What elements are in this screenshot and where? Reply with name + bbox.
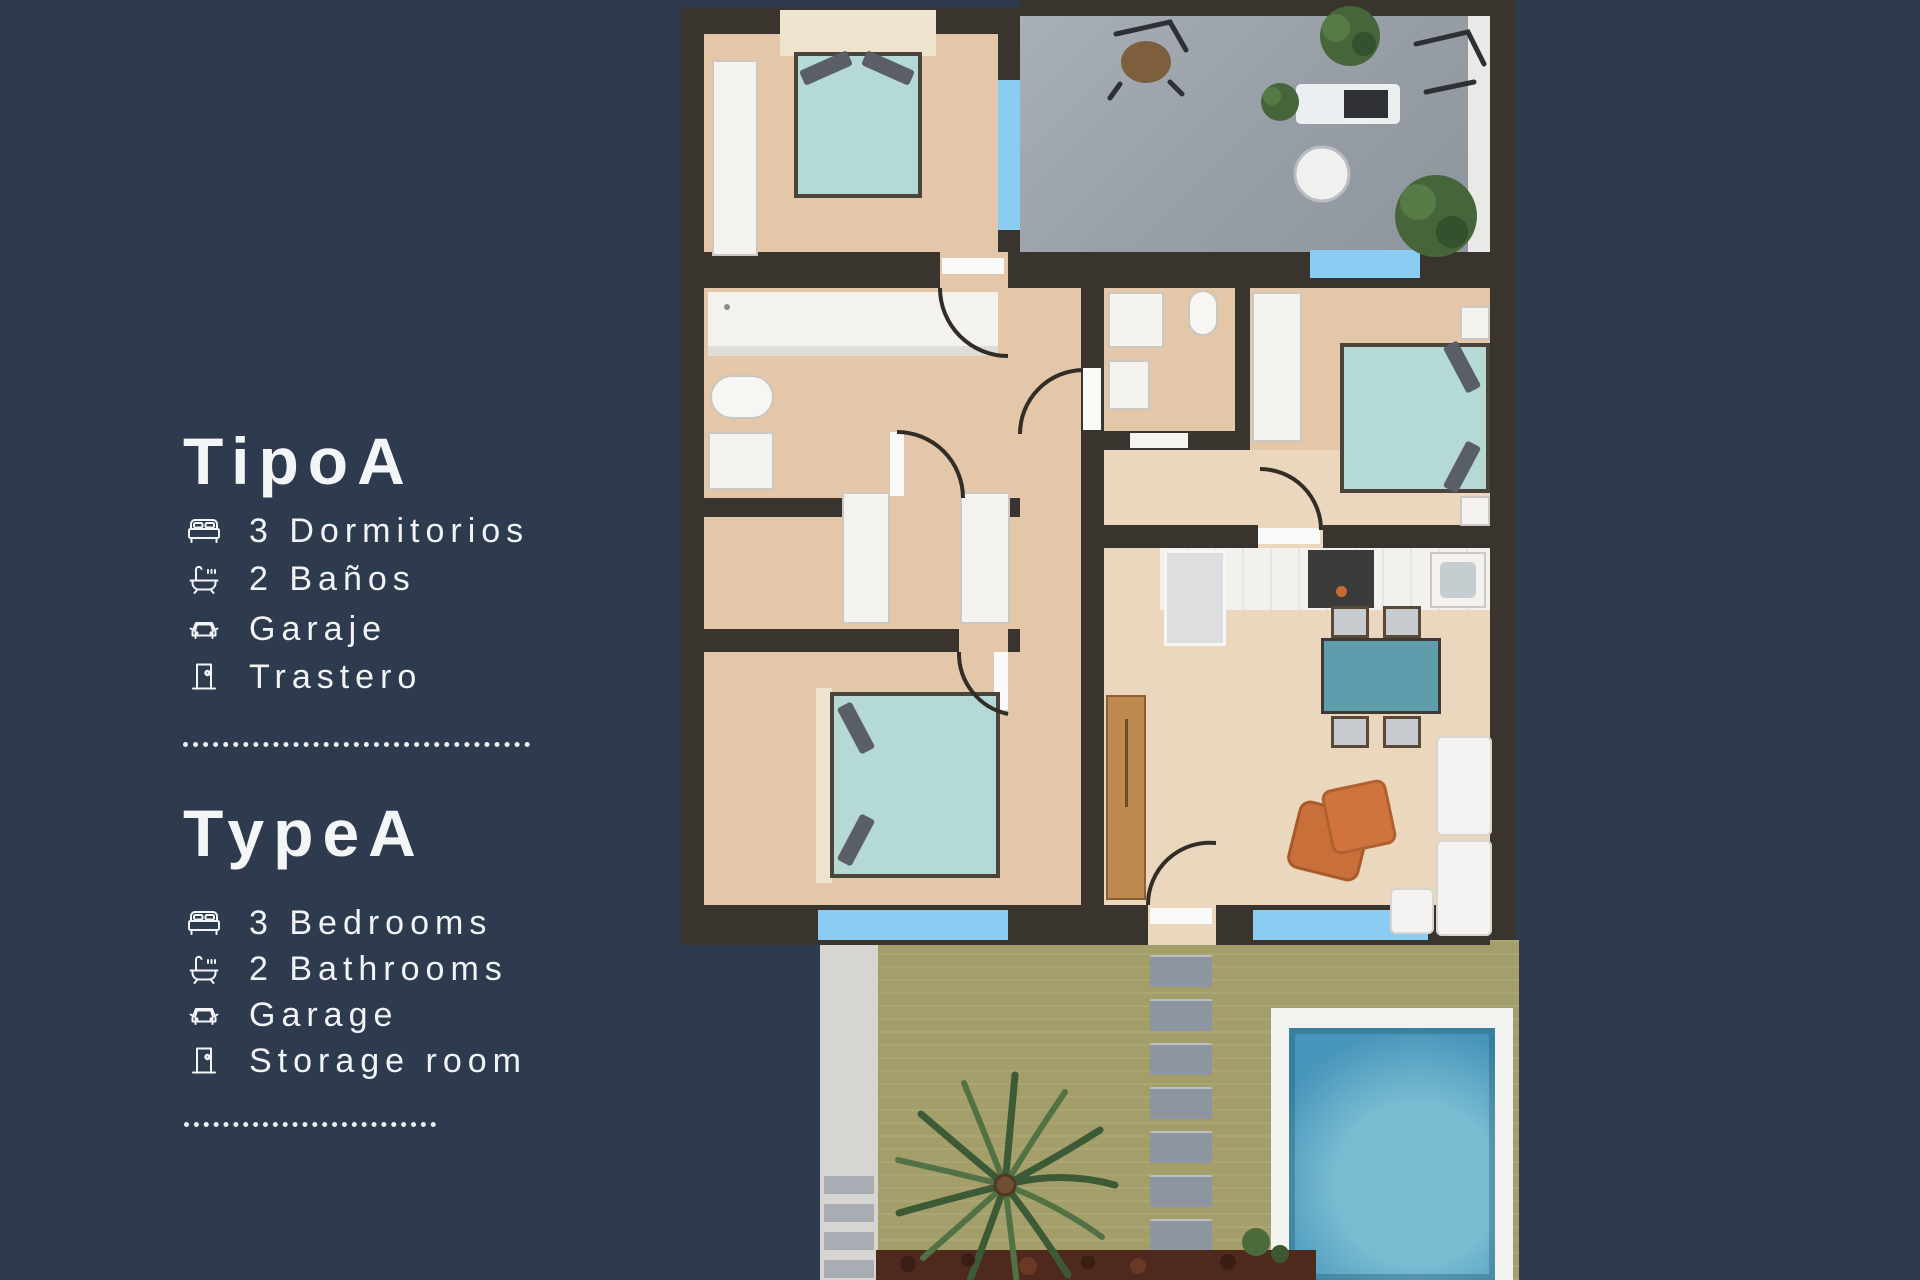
wall xyxy=(1235,288,1250,431)
dotted-divider xyxy=(184,1122,436,1127)
feature-row: Storage room xyxy=(186,1040,527,1082)
bathroom1-toilet xyxy=(710,375,774,419)
sofa-ottoman xyxy=(1390,888,1434,934)
dining-chair xyxy=(1331,716,1369,748)
faucet-dot xyxy=(724,304,730,310)
pillow xyxy=(837,813,876,866)
sofa xyxy=(1436,840,1492,936)
lounge-chair xyxy=(1320,778,1398,856)
kitchen-sink-basin xyxy=(1440,562,1476,598)
feature-label: 3 Bedrooms xyxy=(249,904,492,943)
bathroom2-sink xyxy=(1108,360,1150,410)
dining-chair xyxy=(1383,716,1421,748)
door-leaf xyxy=(1150,908,1212,924)
walkway-paver xyxy=(824,1260,874,1278)
door-icon xyxy=(186,1043,222,1079)
feature-row: 2 Baños xyxy=(186,558,416,600)
kitchen-fridge xyxy=(1164,550,1226,646)
door-leaf xyxy=(1083,368,1101,430)
bedroom2-bed xyxy=(1340,343,1490,493)
wall xyxy=(1020,0,1490,16)
sofa xyxy=(1436,736,1492,836)
bathroom2-shower xyxy=(1108,292,1164,348)
title-es: TipoA xyxy=(183,428,414,494)
stepping-stone xyxy=(1150,1219,1212,1251)
feature-label: Trastero xyxy=(249,658,422,697)
bathroom1-vanity xyxy=(708,292,998,356)
door-opening xyxy=(959,629,1008,652)
feature-row: 3 Bedrooms xyxy=(186,902,492,944)
bedroom2-closet xyxy=(1252,292,1302,442)
pillow xyxy=(1443,340,1482,393)
nightstand xyxy=(1460,306,1490,340)
door-leaf xyxy=(942,258,1004,274)
stepping-stone xyxy=(1150,999,1212,1031)
stepping-stone xyxy=(1150,1043,1212,1075)
wall xyxy=(1490,0,1515,940)
feature-label: 2 Baños xyxy=(249,560,416,599)
walkway-paver xyxy=(824,1176,874,1194)
walkway-paver xyxy=(824,1232,874,1250)
door-leaf xyxy=(1258,528,1320,544)
bed-icon xyxy=(186,513,222,549)
wall xyxy=(680,8,704,940)
pillow xyxy=(799,50,853,86)
title-en: TypeA xyxy=(183,800,425,866)
door-handle xyxy=(1125,719,1128,807)
window xyxy=(818,910,1008,940)
stepping-stone xyxy=(1150,1131,1212,1163)
bedroom1-window-sill xyxy=(780,10,936,32)
hall-wardrobe xyxy=(960,492,1010,624)
feature-row: 2 Bathrooms xyxy=(186,948,508,990)
car-icon xyxy=(186,997,222,1033)
stove-knob xyxy=(1336,586,1347,597)
bathtub-icon xyxy=(186,951,222,987)
bedroom1-bed xyxy=(794,52,922,198)
floor-plan xyxy=(668,0,1519,1280)
entrance-door xyxy=(1106,695,1146,900)
bathroom1-sink xyxy=(708,432,774,490)
feature-label: Storage room xyxy=(249,1042,527,1081)
stepping-stone xyxy=(1150,955,1212,987)
pillow xyxy=(861,50,915,86)
stepping-stone xyxy=(1150,1087,1212,1119)
door-opening xyxy=(890,498,963,517)
walkway-paver xyxy=(824,1204,874,1222)
feature-label: 3 Dormitorios xyxy=(249,512,529,551)
feature-row: Trastero xyxy=(186,656,422,698)
bathroom2-toilet xyxy=(1188,290,1218,336)
feature-row: Garaje xyxy=(186,608,387,650)
mulch-bed xyxy=(876,1250,1316,1280)
window xyxy=(1310,250,1420,278)
nightstand xyxy=(1460,496,1490,526)
hall-wardrobe xyxy=(842,492,890,624)
bathtub-icon xyxy=(186,561,222,597)
dining-chair xyxy=(1331,606,1369,638)
feature-label: 2 Bathrooms xyxy=(249,950,508,989)
door-leaf xyxy=(890,432,904,496)
feature-row: Garage xyxy=(186,994,398,1036)
bedroom3-bed xyxy=(830,692,1000,878)
feature-label: Garaje xyxy=(249,610,387,649)
pool-water xyxy=(1289,1028,1495,1280)
car-icon xyxy=(186,611,222,647)
pillow xyxy=(837,701,876,754)
stepping-stone xyxy=(1150,1175,1212,1207)
garden-walkway xyxy=(820,940,878,1280)
dining-table xyxy=(1321,638,1441,714)
terrace-floor xyxy=(1020,0,1490,277)
window-slider xyxy=(998,80,1020,230)
bedroom1-wardrobe xyxy=(712,60,758,256)
feature-label: Garage xyxy=(249,996,398,1035)
kitchen-stove xyxy=(1308,550,1374,608)
dining-chair xyxy=(1383,606,1421,638)
flyer: TipoA 3 Dormitorios 2 Baños xyxy=(0,0,1920,1280)
threshold xyxy=(1130,433,1188,448)
bed-icon xyxy=(186,905,222,941)
door-icon xyxy=(186,659,222,695)
dotted-divider xyxy=(183,742,530,747)
feature-row: 3 Dormitorios xyxy=(186,510,529,552)
pillow xyxy=(1443,440,1482,493)
